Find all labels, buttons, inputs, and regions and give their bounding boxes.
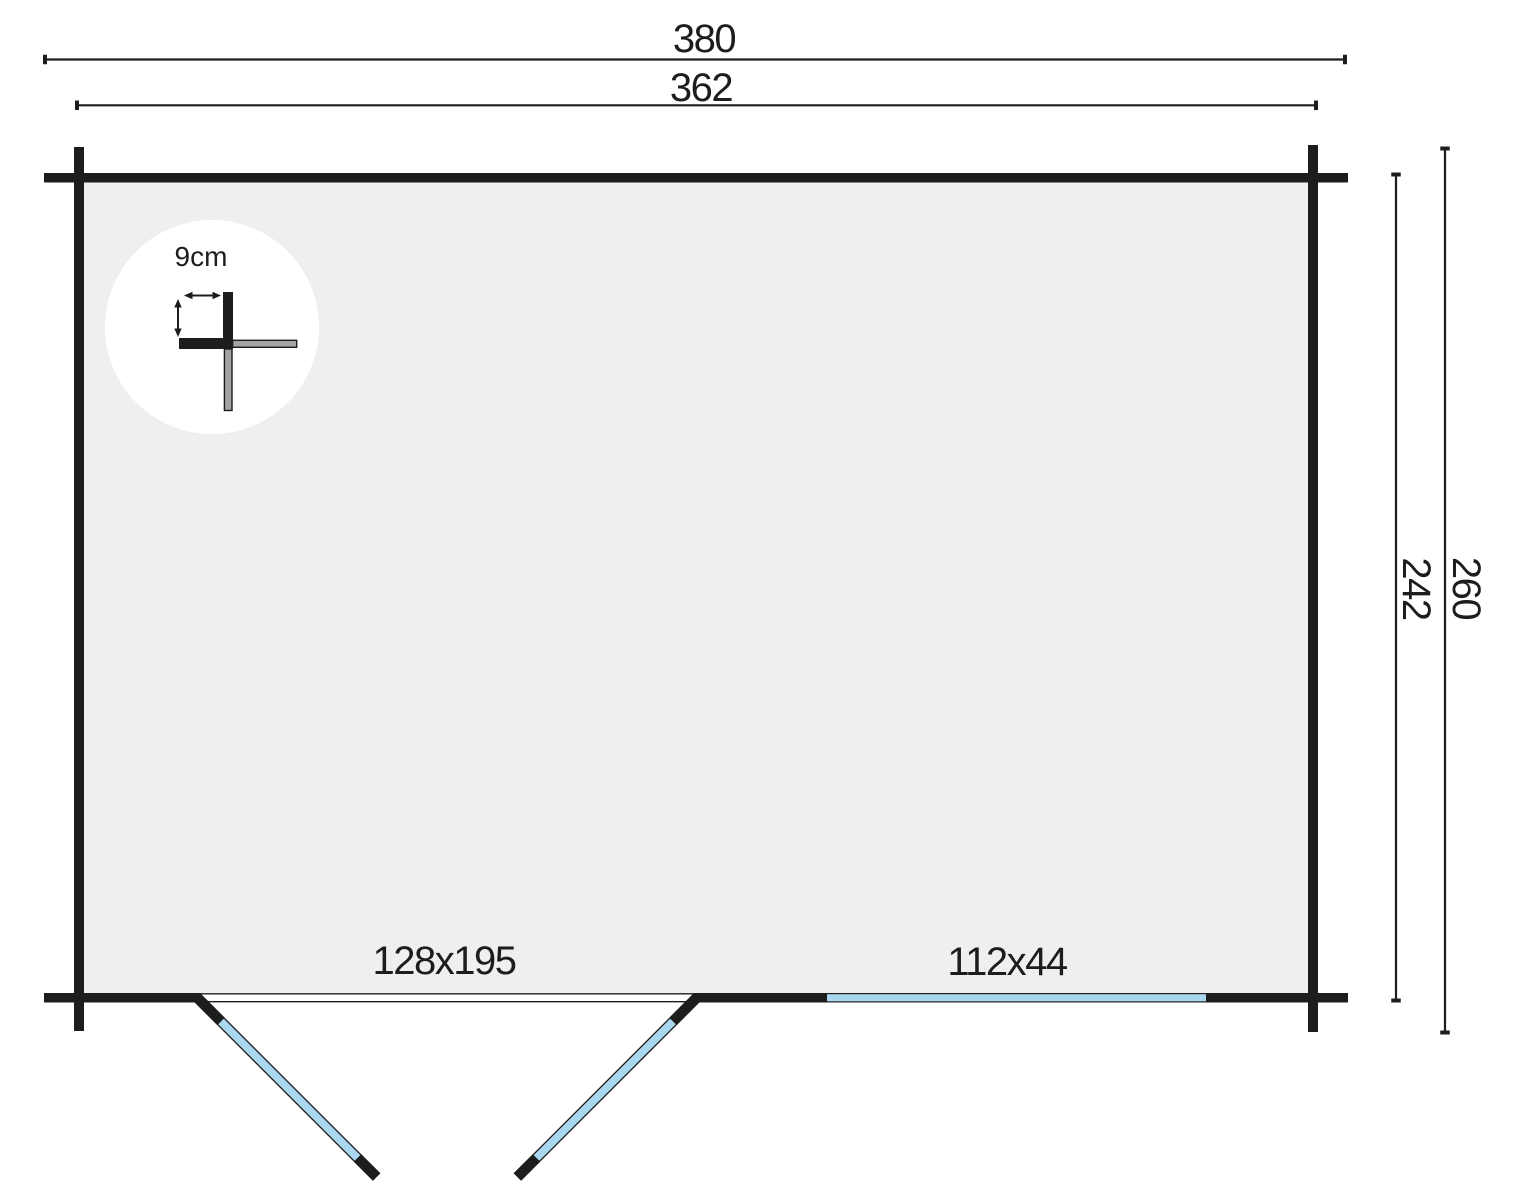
- svg-text:362: 362: [670, 66, 732, 110]
- svg-text:128x195: 128x195: [373, 939, 516, 983]
- svg-text:260: 260: [1444, 557, 1488, 619]
- svg-text:9cm: 9cm: [175, 241, 228, 272]
- svg-text:112x44: 112x44: [947, 940, 1068, 984]
- svg-text:242: 242: [1394, 557, 1438, 619]
- svg-text:380: 380: [673, 17, 735, 61]
